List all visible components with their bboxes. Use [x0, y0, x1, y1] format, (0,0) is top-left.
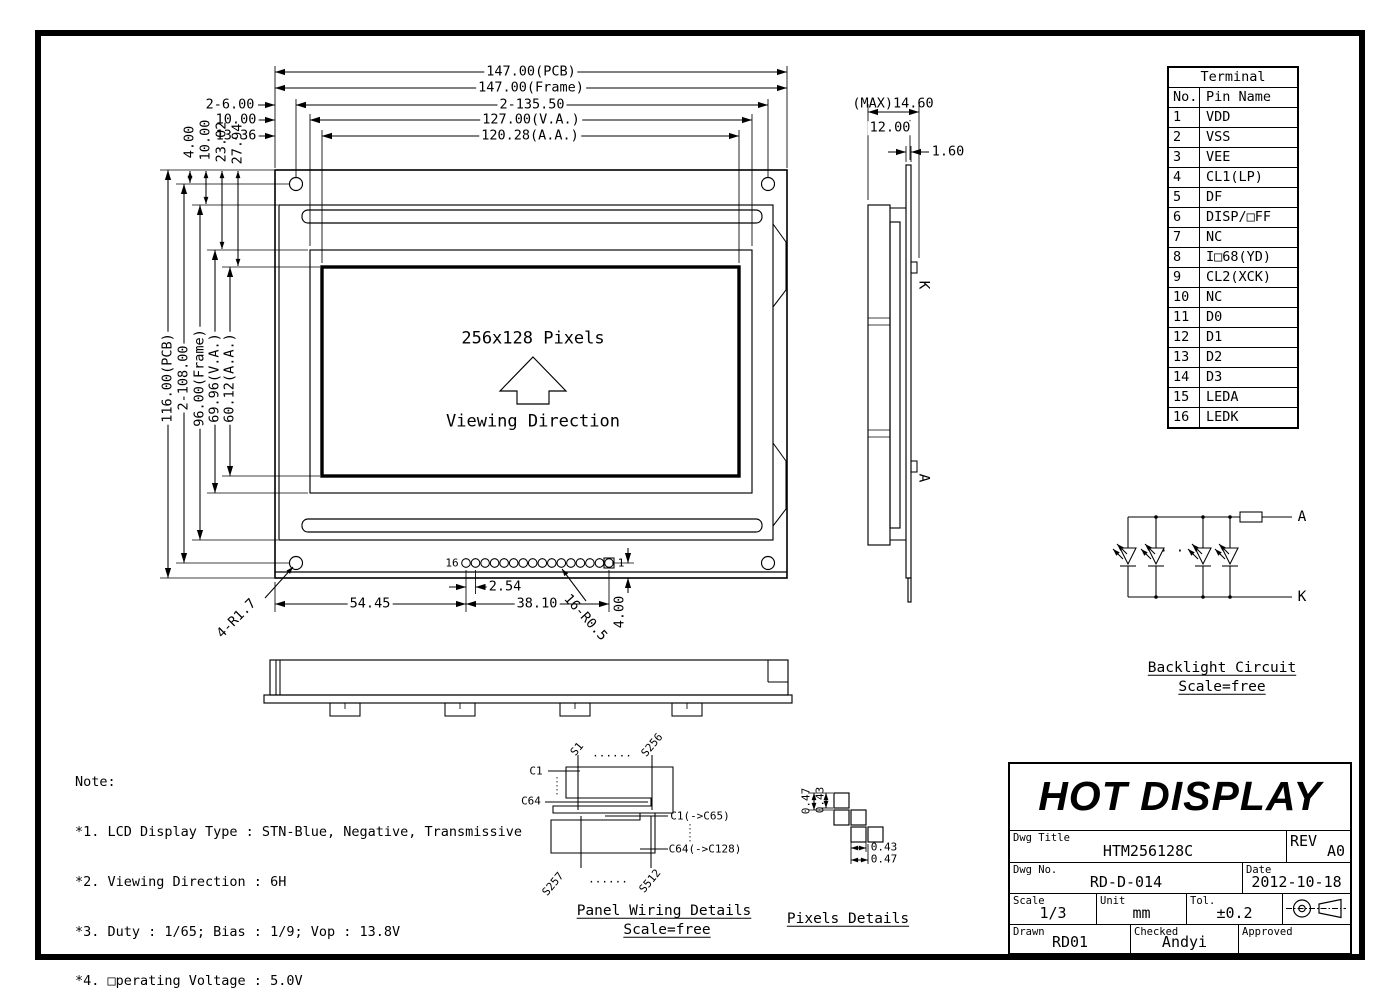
- pixel-resolution-label: 256x128 Pixels: [461, 331, 604, 348]
- wiring-c1: C1: [529, 766, 542, 777]
- dim-va-height: 69.96(V.A.): [208, 331, 222, 424]
- projection-symbol-cell: [1282, 893, 1350, 924]
- terminal-row: 7NC: [1169, 228, 1297, 248]
- pixel-pitch-h: 0.47: [871, 854, 898, 865]
- terminal-row: 6DISP/□FF: [1169, 208, 1297, 228]
- date-value: 2012-10-18: [1243, 873, 1350, 891]
- wiring-dots-top: ......: [592, 748, 632, 759]
- dim-frame-height: 96.00(Frame): [193, 327, 207, 429]
- backlight-title: Backlight Circuit: [1148, 661, 1296, 676]
- dim-hole-offset: 2-6.00: [204, 98, 257, 112]
- terminal-row: 4CL1(LP): [1169, 168, 1297, 188]
- wiring-title: Panel Wiring Details: [577, 904, 752, 919]
- dim-va-width: 127.00(V.A.): [480, 113, 582, 127]
- notes-heading: Note:: [75, 774, 522, 791]
- dim-hole-span: 2-135.50: [497, 98, 566, 112]
- checked-cell: Checked Andyi: [1130, 924, 1238, 953]
- side-label-k: K: [916, 281, 931, 290]
- backlight-circuit: [1113, 512, 1292, 599]
- wiring-c64: C64: [521, 796, 541, 807]
- pin-row: [462, 558, 614, 568]
- note-line: *4. □perating Voltage : 5.0V: [75, 973, 522, 989]
- terminal-row: 14D3: [1169, 368, 1297, 388]
- approved-cell: Approved: [1238, 924, 1350, 953]
- dim-pin-span: 38.10: [515, 597, 560, 611]
- rev-cell: REV A0: [1286, 830, 1350, 862]
- terminal-col-name: Pin Name: [1200, 88, 1297, 107]
- tol-value: ±0.2: [1187, 904, 1282, 922]
- title-block: HOT DISPLAY Dwg Title HTM256128C REV A0 …: [1008, 762, 1352, 955]
- backlight-cathode-label: K: [1298, 590, 1307, 605]
- dim-aa-width: 120.28(A.A.): [479, 129, 581, 143]
- pin-1-label: 1: [618, 558, 625, 569]
- approved-label: Approved: [1242, 926, 1293, 938]
- dwg-title-cell: Dwg Title HTM256128C: [1010, 830, 1286, 862]
- note-line: *2. Viewing Direction : 6H: [75, 874, 522, 891]
- backlight-dots: . . .: [1160, 541, 1201, 555]
- dim-pin-pitch: 2.54: [487, 580, 524, 594]
- scale-cell: Scale 1/3: [1010, 893, 1096, 924]
- backlight-scale: Scale=free: [1178, 680, 1265, 695]
- terminal-row: 12D1: [1169, 328, 1297, 348]
- terminal-row: 5DF: [1169, 188, 1297, 208]
- dwg-no-cell: Dwg No. RD-D-014: [1010, 862, 1242, 893]
- dim-max-thickness: (MAX)14.60: [852, 97, 933, 111]
- terminal-title: Terminal: [1169, 68, 1297, 88]
- checked-value: Andyi: [1131, 933, 1238, 951]
- terminal-row: 3VEE: [1169, 148, 1297, 168]
- pixel-dot-v: 0.43: [815, 787, 826, 814]
- wiring-c1-c65: C1(->C65): [670, 811, 730, 822]
- unit-value: mm: [1097, 904, 1186, 922]
- viewing-direction-label: Viewing Direction: [446, 414, 620, 431]
- notes-block: Note: *1. LCD Display Type : STN-Blue, N…: [75, 741, 522, 989]
- wiring-scale: Scale=free: [623, 923, 710, 938]
- dim-pcb-height: 116.00(PCB): [161, 331, 175, 424]
- terminal-header: No. Pin Name: [1169, 88, 1297, 108]
- terminal-row: 15LEDA: [1169, 388, 1297, 408]
- dim-pcb-thickness: 1.60: [932, 145, 965, 159]
- scale-value: 1/3: [1010, 904, 1096, 922]
- drawn-value: RD01: [1010, 933, 1130, 951]
- wiring-dots-bottom: ......: [588, 874, 628, 885]
- terminal-row: 8I□68(YD): [1169, 248, 1297, 268]
- pixel-dot-h: 0.43: [871, 842, 898, 853]
- terminal-row: 9CL2(XCK): [1169, 268, 1297, 288]
- date-cell: Date 2012-10-18: [1242, 862, 1350, 893]
- projection-symbol-icon: [1283, 894, 1349, 923]
- terminal-row: 16LEDK: [1169, 408, 1297, 427]
- terminal-table: Terminal No. Pin Name 1VDD 2VSS 3VEE 4CL…: [1167, 66, 1299, 429]
- pixel-pitch-v: 0.47: [801, 788, 812, 815]
- company-name: HOT DISPLAY: [1010, 764, 1350, 830]
- terminal-row: 13D2: [1169, 348, 1297, 368]
- terminal-row: 1VDD: [1169, 108, 1297, 128]
- terminal-row: 10NC: [1169, 288, 1297, 308]
- pixels-detail-title: Pixels Details: [787, 912, 909, 927]
- terminal-row: 2VSS: [1169, 128, 1297, 148]
- dim-pin-edge: 4.00: [613, 596, 627, 629]
- wiring-c64-c128: C64(->C128): [669, 844, 742, 855]
- dim-pcb-width: 147.00(PCB): [484, 65, 577, 79]
- dim-body-depth: 12.00: [868, 121, 913, 135]
- backlight-anode-label: A: [1298, 510, 1307, 525]
- rev-value: A0: [1287, 842, 1350, 860]
- dim-frame-top: 10.00: [199, 120, 213, 161]
- dim-hole-top: 4.00: [183, 126, 197, 159]
- dwg-no-value: RD-D-014: [1010, 873, 1242, 891]
- dim-aa-height: 60.12(A.A.): [223, 331, 237, 424]
- dim-aa-top: 27.94: [231, 124, 245, 165]
- dwg-title-value: HTM256128C: [1010, 842, 1286, 860]
- dim-hole-vspan: 2-108.00: [177, 343, 191, 412]
- pin-16-label: 16: [445, 558, 458, 569]
- terminal-row: 11D0: [1169, 308, 1297, 328]
- dim-pin-left-offset: 54.45: [348, 597, 393, 611]
- dim-frame-width: 147.00(Frame): [476, 81, 586, 95]
- tol-cell: Tol. ±0.2: [1186, 893, 1282, 924]
- terminal-col-no: No.: [1169, 88, 1200, 107]
- note-line: *1. LCD Display Type : STN-Blue, Negativ…: [75, 824, 522, 841]
- side-label-a: A: [916, 474, 931, 483]
- note-line: *3. Duty : 1/65; Bias : 1/9; Vop : 13.8V: [75, 924, 522, 941]
- dim-va-top: 23.02: [215, 122, 229, 163]
- drawn-cell: Drawn RD01: [1010, 924, 1130, 953]
- drawing-sheet: 147.00(PCB) 147.00(Frame) 2-135.50 127.0…: [0, 0, 1400, 989]
- unit-cell: Unit mm: [1096, 893, 1186, 924]
